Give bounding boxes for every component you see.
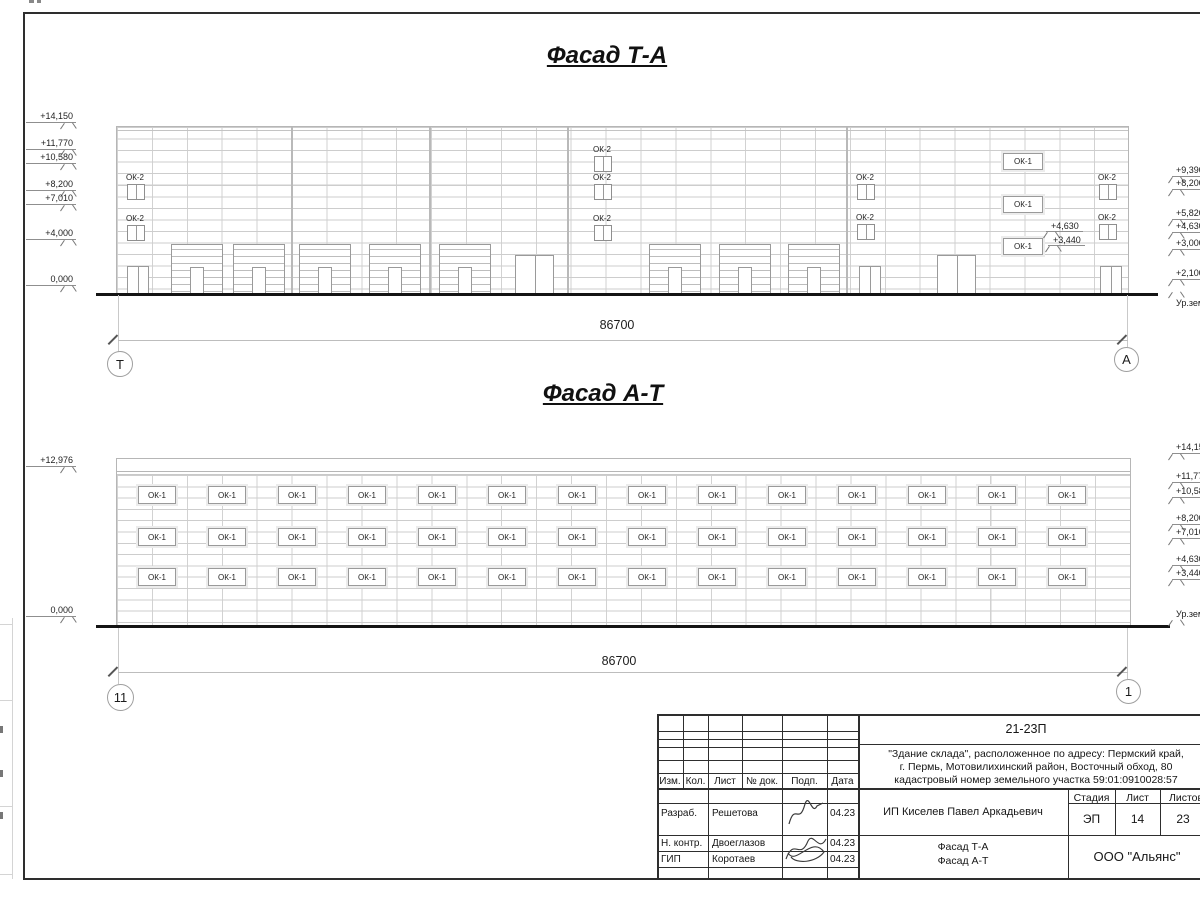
- garage-door: [788, 244, 840, 295]
- garage-wicket-panel: [252, 267, 266, 294]
- elevation-mark-value: +2,100: [1176, 268, 1200, 278]
- elevation-mark-value: 0,000: [26, 274, 73, 284]
- window-ok1: ОК-1: [278, 528, 316, 546]
- door-leaf-divider: [138, 267, 139, 294]
- flag-stroke: [72, 285, 77, 291]
- window-label: ОК-1: [358, 533, 376, 542]
- window-label: ОК-1: [778, 533, 796, 542]
- elevation-mark-value: +3,000: [1176, 238, 1200, 248]
- flag-stroke: [72, 239, 77, 245]
- tb-name-dvoeglazov: Двоеглазов: [712, 838, 765, 849]
- flag-stroke: [60, 240, 65, 246]
- ta-column-joint: [567, 127, 569, 294]
- flag-stroke: [1168, 566, 1173, 572]
- window-label: ОК-1: [1058, 573, 1076, 582]
- tb-sheets-label: Листов: [1160, 792, 1200, 804]
- elevation-flag-icon: [1172, 454, 1181, 461]
- flag-stroke: [1168, 454, 1173, 460]
- window-label: ОК-1: [988, 573, 1006, 582]
- elevation-flag-icon: [64, 467, 73, 474]
- flag-stroke: [60, 205, 65, 211]
- elevation-flag-icon: [1172, 190, 1181, 197]
- window-ok1: ОК-1: [908, 528, 946, 546]
- flag-stroke: [1168, 498, 1173, 504]
- window-label: ОК-1: [218, 533, 236, 542]
- tb-line: [657, 731, 858, 732]
- window-small-label: ОК-2: [852, 213, 878, 222]
- margin-artifact-vline: [12, 618, 13, 879]
- elevation-flag-icon: [1172, 539, 1181, 546]
- window-wide-label: ОК-1: [1014, 242, 1032, 251]
- window-ok1: ОК-1: [908, 486, 946, 504]
- tb-col-kol: Кол.: [683, 776, 708, 787]
- flag-stroke: [1180, 497, 1185, 503]
- flag-stroke: [72, 616, 77, 622]
- window-ok1: ОК-1: [978, 568, 1016, 586]
- window-ok1: ОК-1: [138, 486, 176, 504]
- elevation-flag-icon: [1172, 250, 1181, 257]
- tb-sheet-label: Лист: [1115, 792, 1160, 804]
- window-small-label: ОК-2: [122, 214, 148, 223]
- window-ok1: ОК-1: [1048, 486, 1086, 504]
- tb-line: [657, 867, 858, 868]
- door-leaf-divider: [535, 256, 536, 294]
- at-dimension-value: 86700: [519, 654, 719, 668]
- tb-col-list: Лист: [708, 776, 742, 787]
- facade-at-title: Фасад А-Т: [453, 380, 753, 408]
- elevation-mark-value: +7,010: [1176, 527, 1200, 537]
- elevation-mark-value: +4,000: [26, 228, 73, 238]
- flag-stroke: [1180, 579, 1185, 585]
- tb-role-gip: ГИП: [661, 854, 681, 865]
- tb-sheets-value: 23: [1160, 812, 1200, 826]
- window-ok1: ОК-1: [558, 486, 596, 504]
- elevation-flag-icon: [1172, 580, 1181, 587]
- window-ok2: [127, 225, 145, 241]
- frame-bottom: [23, 878, 1200, 880]
- window-wide-label: ОК-1: [1014, 157, 1032, 166]
- tb-role-razrab: Разраб.: [661, 808, 697, 819]
- window-ok1: ОК-1: [488, 568, 526, 586]
- window-mullion: [603, 157, 604, 171]
- tb-line: [657, 714, 1200, 716]
- garage-door: [439, 244, 491, 295]
- window-label: ОК-1: [638, 491, 656, 500]
- window-label: ОК-1: [918, 491, 936, 500]
- elevation-mark-value: +4,630: [1051, 221, 1079, 231]
- garage-wicket-panel: [668, 267, 682, 294]
- window-label: ОК-1: [988, 533, 1006, 542]
- ta-dimension-line: [118, 340, 1128, 341]
- facade-ta-ground-line: [96, 293, 1158, 296]
- window-ok1: ОК-1: [418, 486, 456, 504]
- window-ok1: ОК-1: [838, 528, 876, 546]
- ta-ext-line-left: [118, 295, 119, 352]
- door-leaf-divider: [1111, 267, 1112, 294]
- tb-role-nkontr: Н. контр.: [661, 838, 702, 849]
- elevation-flag-icon: [1172, 280, 1181, 287]
- entrance-door: [1100, 266, 1122, 295]
- margin-artifact-hline: [0, 700, 12, 701]
- window-ok1: ОК-1: [418, 568, 456, 586]
- window-wide-label: ОК-1: [1014, 200, 1032, 209]
- window-ok1: ОК-1: [558, 528, 596, 546]
- elevation-flag-icon: [1172, 292, 1181, 299]
- window-ok1: ОК-1: [698, 528, 736, 546]
- window-label: ОК-1: [638, 573, 656, 582]
- at-dimension-line: [118, 672, 1128, 673]
- window-ok1: ОК-1: [698, 486, 736, 504]
- elevation-flag-icon: [64, 164, 73, 171]
- window-ok1: ОК-1: [348, 568, 386, 586]
- window-ok1: ОК-1: [348, 486, 386, 504]
- window-ok1: ОК-1: [1048, 568, 1086, 586]
- window-ok1: ОК-1: [208, 528, 246, 546]
- window-ok1: ОК-1: [138, 528, 176, 546]
- window-label: ОК-1: [638, 533, 656, 542]
- facade-ta-title: Фасад Т-А: [457, 42, 757, 70]
- flag-stroke: [72, 122, 77, 128]
- at-axis-bubble-right: 1: [1116, 679, 1141, 704]
- tb-name-reshetova: Решетова: [712, 808, 758, 819]
- flag-stroke: [72, 204, 77, 210]
- frame-left: [23, 12, 25, 880]
- tb-col-ndok: № док.: [742, 776, 782, 787]
- flag-stroke: [60, 467, 65, 473]
- edge-artifact-top: [29, 0, 34, 3]
- tb-doc-title-2: Фасад А-Т: [860, 855, 1066, 867]
- elevation-mark-value: +14,150: [1176, 442, 1200, 452]
- tb-line: [657, 788, 1200, 790]
- window-mullion: [136, 226, 137, 240]
- window-ok1: ОК-1: [838, 568, 876, 586]
- flag-stroke: [60, 123, 65, 129]
- ta-axis-bubble-right: А: [1114, 347, 1139, 372]
- tb-line: [858, 744, 1200, 745]
- elevation-mark-value: +4,630: [1176, 221, 1200, 231]
- tb-line: [657, 803, 858, 804]
- tb-stage-label: Стадия: [1068, 792, 1115, 804]
- elevation-mark-value: +10,580: [1176, 486, 1200, 496]
- tb-object-line-2: г. Пермь, Мотовилихинский район, Восточн…: [860, 761, 1200, 773]
- door-leaf-divider: [870, 267, 871, 294]
- ta-dim-tick-left: [108, 334, 118, 344]
- tb-line: [657, 835, 1200, 836]
- window-label: ОК-1: [148, 533, 166, 542]
- window-label: ОК-1: [988, 491, 1006, 500]
- tb-date-2: 04.23: [827, 838, 858, 849]
- window-label: ОК-1: [778, 573, 796, 582]
- elevation-flag-icon: [64, 240, 73, 247]
- window-mullion: [1108, 185, 1109, 199]
- window-mullion: [1108, 225, 1109, 239]
- window-ok2: [857, 224, 875, 240]
- tb-date-3: 04.23: [827, 854, 858, 865]
- window-ok1: ОК-1: [208, 486, 246, 504]
- window-mullion: [866, 185, 867, 199]
- elevation-flag-icon: [1172, 620, 1181, 627]
- elevation-mark-value: +14,150: [26, 111, 73, 121]
- window-small-label: ОК-2: [1094, 173, 1120, 182]
- tb-doc-title-1: Фасад Т-А: [860, 841, 1066, 853]
- window-ok1: ОК-1: [978, 486, 1016, 504]
- window-label: ОК-1: [288, 573, 306, 582]
- window-ok1: ОК-1: [1003, 153, 1043, 170]
- window-label: ОК-1: [848, 491, 866, 500]
- door-leaf-divider: [957, 256, 958, 294]
- flag-stroke: [1180, 249, 1185, 255]
- window-ok2: [594, 184, 612, 200]
- garage-door: [719, 244, 771, 295]
- window-label: ОК-1: [918, 533, 936, 542]
- elevation-flag-icon: [1049, 246, 1058, 253]
- garage-wicket-panel: [738, 267, 752, 294]
- window-label: ОК-1: [708, 573, 726, 582]
- ta-parapet-line: [117, 130, 1128, 131]
- tb-stage-value: ЭП: [1068, 812, 1115, 826]
- window-ok2: [127, 184, 145, 200]
- window-label: ОК-1: [428, 573, 446, 582]
- window-ok1: ОК-1: [628, 528, 666, 546]
- window-ok1: ОК-1: [768, 528, 806, 546]
- tb-line: [657, 747, 858, 748]
- garage-door: [171, 244, 223, 295]
- window-ok1: ОК-1: [208, 568, 246, 586]
- flag-stroke: [1168, 220, 1173, 226]
- tb-name-korotaev: Коротаев: [712, 854, 755, 865]
- window-ok1: ОК-1: [348, 528, 386, 546]
- window-ok1: ОК-1: [278, 568, 316, 586]
- window-label: ОК-1: [708, 533, 726, 542]
- window-ok1: ОК-1: [698, 568, 736, 586]
- flag-stroke: [1168, 539, 1173, 545]
- window-ok1: ОК-1: [908, 568, 946, 586]
- ground-level-label: Ур.зем.: [1176, 298, 1200, 308]
- facade-ta-elevation: ОК-2ОК-2ОК-2ОК-2ОК-2ОК-2ОК-2ОК-2ОК-2ОК-1…: [116, 126, 1129, 294]
- tb-col-podp: Подп.: [782, 776, 827, 787]
- garage-door: [299, 244, 351, 295]
- window-label: ОК-1: [848, 533, 866, 542]
- flag-stroke: [1168, 280, 1173, 286]
- flag-stroke: [60, 164, 65, 170]
- window-ok2: [1099, 224, 1117, 240]
- double-door: [937, 255, 976, 295]
- window-label: ОК-1: [148, 573, 166, 582]
- window-label: ОК-1: [498, 533, 516, 542]
- elevation-flag-icon: [64, 123, 73, 130]
- flag-stroke: [1168, 177, 1173, 183]
- elevation-flag-icon: [1172, 498, 1181, 505]
- elevation-mark-value: 0,000: [26, 605, 73, 615]
- window-ok1: ОК-1: [768, 568, 806, 586]
- window-small-label: ОК-2: [589, 173, 615, 182]
- elevation-mark-value: +7,010: [26, 193, 73, 203]
- flag-stroke: [72, 466, 77, 472]
- window-label: ОК-1: [498, 491, 516, 500]
- tb-project-code: 21-23П: [858, 722, 1194, 736]
- flag-stroke: [60, 286, 65, 292]
- garage-wicket-panel: [388, 267, 402, 294]
- garage-wicket-panel: [807, 267, 821, 294]
- elevation-mark-value: +3,440: [1176, 568, 1200, 578]
- ta-column-joint: [291, 127, 293, 294]
- window-small-label: ОК-2: [589, 214, 615, 223]
- margin-artifact-text: [0, 726, 3, 733]
- window-ok1: ОК-1: [1003, 238, 1043, 255]
- flag-stroke: [1180, 279, 1185, 285]
- window-ok1: ОК-1: [628, 568, 666, 586]
- elevation-mark-value: +11,770: [26, 138, 73, 148]
- margin-artifact-text: [0, 770, 3, 777]
- window-ok1: ОК-1: [1048, 528, 1086, 546]
- elevation-mark-value: +8,200: [1176, 513, 1200, 523]
- signature-1: [786, 794, 826, 832]
- flag-stroke: [1180, 619, 1185, 625]
- flag-stroke: [1180, 189, 1185, 195]
- garage-door: [369, 244, 421, 295]
- facade-at-elevation: ОК-1ОК-1ОК-1ОК-1ОК-1ОК-1ОК-1ОК-1ОК-1ОК-1…: [116, 458, 1131, 627]
- window-ok1: ОК-1: [138, 568, 176, 586]
- tb-col-izm: Изм.: [657, 776, 683, 787]
- window-label: ОК-1: [708, 491, 726, 500]
- garage-door: [649, 244, 701, 295]
- window-label: ОК-1: [1058, 491, 1076, 500]
- at-ext-line-left: [118, 628, 119, 684]
- window-label: ОК-1: [568, 533, 586, 542]
- window-mullion: [136, 185, 137, 199]
- flag-stroke: [1168, 190, 1173, 196]
- tb-client: ИП Киселев Павел Аркадьевич: [860, 806, 1066, 818]
- window-label: ОК-1: [568, 573, 586, 582]
- tb-object-line-1: "Здание склада", расположенное по адресу…: [860, 748, 1200, 760]
- window-label: ОК-1: [918, 573, 936, 582]
- flag-stroke: [1168, 620, 1173, 626]
- garage-wicket-panel: [190, 267, 204, 294]
- margin-artifact-text: [0, 812, 3, 819]
- elevation-flag-icon: [64, 286, 73, 293]
- tb-line: [657, 773, 858, 774]
- garage-door: [233, 244, 285, 295]
- window-label: ОК-1: [568, 491, 586, 500]
- elevation-mark-value: +8,200: [26, 179, 73, 189]
- tb-object-line-3: кадастровый номер земельного участка 59:…: [860, 774, 1200, 786]
- elevation-mark-value: +12,976: [26, 455, 73, 465]
- facade-at-ground-line: [96, 625, 1170, 628]
- window-ok2: [1099, 184, 1117, 200]
- window-ok1: ОК-1: [278, 486, 316, 504]
- double-door: [515, 255, 554, 295]
- flag-stroke: [1180, 291, 1185, 297]
- ta-axis-bubble-left: Т: [107, 351, 133, 377]
- tb-line: [657, 739, 858, 740]
- elevation-mark-value: +4,630: [1176, 554, 1200, 564]
- ta-column-joint: [429, 127, 431, 294]
- window-ok1: ОК-1: [418, 528, 456, 546]
- elevation-mark-value: +8,200: [1176, 178, 1200, 188]
- window-small-label: ОК-2: [589, 145, 615, 154]
- garage-wicket-panel: [458, 267, 472, 294]
- window-small-label: ОК-2: [122, 173, 148, 182]
- window-label: ОК-1: [218, 573, 236, 582]
- ta-column-joint: [846, 127, 848, 294]
- flag-stroke: [1168, 250, 1173, 256]
- window-label: ОК-1: [428, 491, 446, 500]
- elevation-flag-icon: [64, 205, 73, 212]
- garage-wicket-panel: [318, 267, 332, 294]
- tb-company: ООО "Альянс": [1068, 849, 1200, 864]
- flag-stroke: [1168, 580, 1173, 586]
- window-ok2: [594, 156, 612, 172]
- window-ok1: ОК-1: [628, 486, 666, 504]
- window-small-label: ОК-2: [1094, 213, 1120, 222]
- entrance-door: [127, 266, 149, 295]
- window-label: ОК-1: [358, 573, 376, 582]
- elevation-mark-value: +11,770: [1176, 471, 1200, 481]
- window-ok1: ОК-1: [488, 528, 526, 546]
- frame-top: [23, 12, 1200, 14]
- tb-col-data: Дата: [827, 776, 858, 787]
- window-ok1: ОК-1: [768, 486, 806, 504]
- margin-artifact-hline: [0, 624, 12, 625]
- elevation-mark-value: +10,580: [26, 152, 73, 162]
- tb-line: [657, 760, 858, 761]
- elevation-mark-value: +5,820: [1176, 208, 1200, 218]
- edge-artifact-top: [37, 0, 41, 3]
- drawing-sheet: Фасад Т-А Фасад А-Т ОК-2ОК-2ОК-2ОК-2ОК-2…: [0, 0, 1200, 900]
- flag-stroke: [60, 617, 65, 623]
- window-label: ОК-1: [218, 491, 236, 500]
- window-ok1: ОК-1: [488, 486, 526, 504]
- margin-artifact-hline: [0, 874, 12, 875]
- window-small-label: ОК-2: [852, 173, 878, 182]
- elevation-mark-value: +9,390: [1176, 165, 1200, 175]
- ground-level-label: Ур.зем.: [1176, 609, 1200, 619]
- window-mullion: [866, 225, 867, 239]
- flag-stroke: [72, 163, 77, 169]
- window-label: ОК-1: [288, 533, 306, 542]
- window-label: ОК-1: [848, 573, 866, 582]
- window-ok1: ОК-1: [838, 486, 876, 504]
- at-dim-tick-left: [108, 666, 118, 676]
- window-mullion: [603, 185, 604, 199]
- window-label: ОК-1: [428, 533, 446, 542]
- flag-stroke: [1168, 292, 1173, 298]
- flag-stroke: [1168, 525, 1173, 531]
- window-label: ОК-1: [148, 491, 166, 500]
- flag-stroke: [1168, 233, 1173, 239]
- at-axis-bubble-left: 11: [107, 684, 134, 711]
- window-mullion: [603, 226, 604, 240]
- window-ok1: ОК-1: [1003, 196, 1043, 213]
- window-label: ОК-1: [288, 491, 306, 500]
- window-ok1: ОК-1: [978, 528, 1016, 546]
- margin-artifact-hline: [0, 806, 12, 807]
- flag-stroke: [1180, 538, 1185, 544]
- window-ok1: ОК-1: [558, 568, 596, 586]
- tb-date-1: 04.23: [827, 808, 858, 819]
- window-label: ОК-1: [778, 491, 796, 500]
- ta-dimension-value: 86700: [517, 318, 717, 332]
- at-parapet-band: [117, 459, 1130, 472]
- window-label: ОК-1: [358, 491, 376, 500]
- tb-sheet-value: 14: [1115, 812, 1160, 826]
- elevation-flag-icon: [64, 617, 73, 624]
- window-ok2: [857, 184, 875, 200]
- window-label: ОК-1: [1058, 533, 1076, 542]
- signature-2: [783, 833, 829, 867]
- flag-stroke: [1180, 453, 1185, 459]
- window-ok2: [594, 225, 612, 241]
